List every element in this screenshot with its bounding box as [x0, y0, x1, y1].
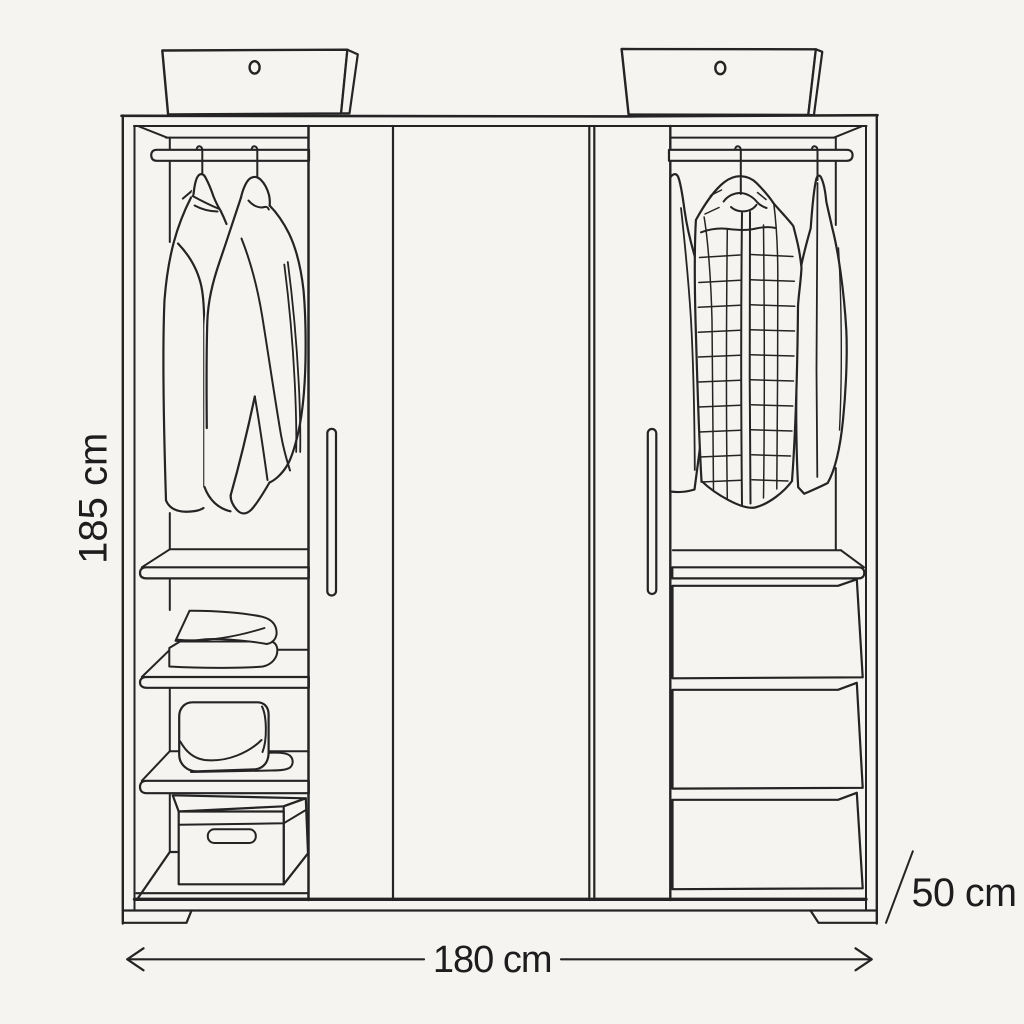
svg-text:180 cm: 180 cm [433, 939, 552, 981]
svg-text:50 cm: 50 cm [912, 871, 1017, 915]
svg-text:185 cm: 185 cm [72, 433, 116, 564]
